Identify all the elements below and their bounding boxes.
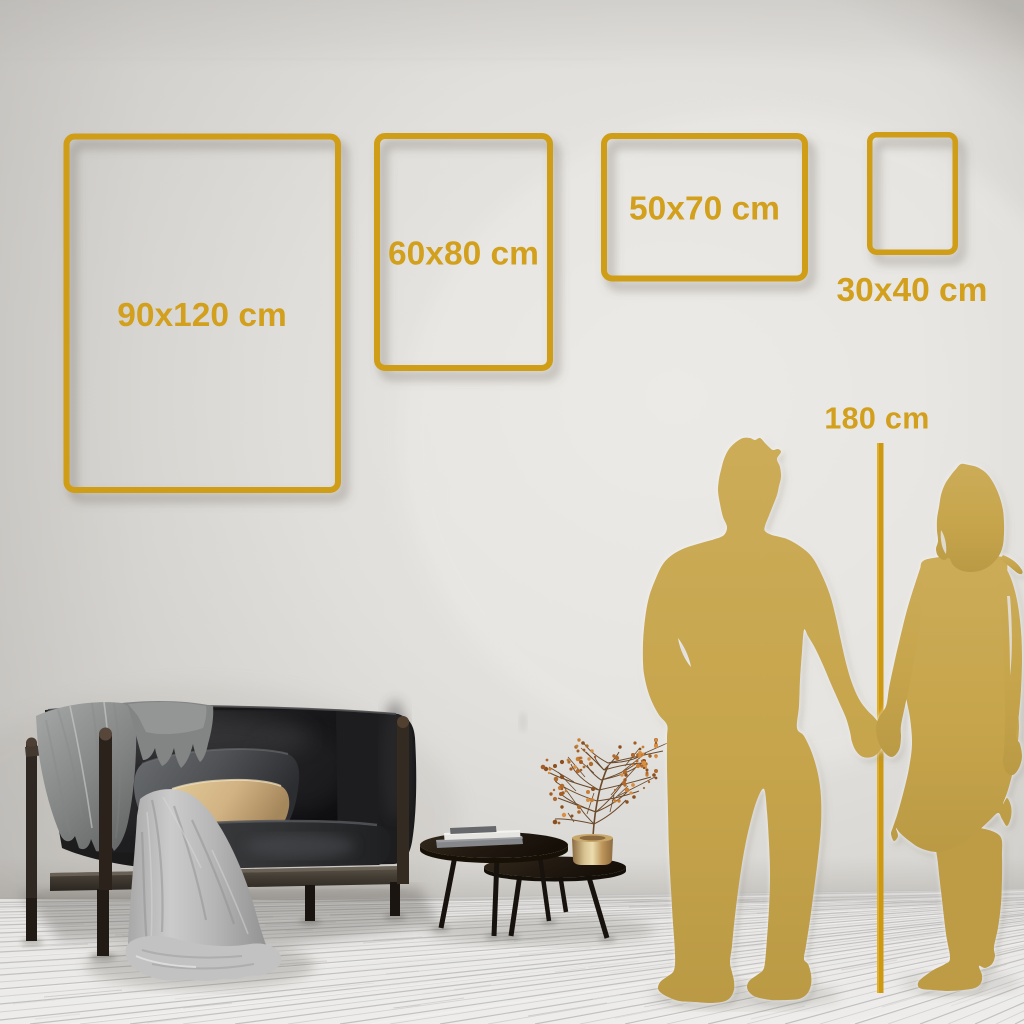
svg-text:90x120 cm: 90x120 cm — [117, 297, 287, 334]
svg-text:30x40 cm: 30x40 cm — [837, 272, 988, 309]
svg-text:60x80 cm: 60x80 cm — [388, 236, 539, 273]
svg-text:180 cm: 180 cm — [824, 402, 929, 436]
svg-text:50x70 cm: 50x70 cm — [629, 191, 780, 228]
